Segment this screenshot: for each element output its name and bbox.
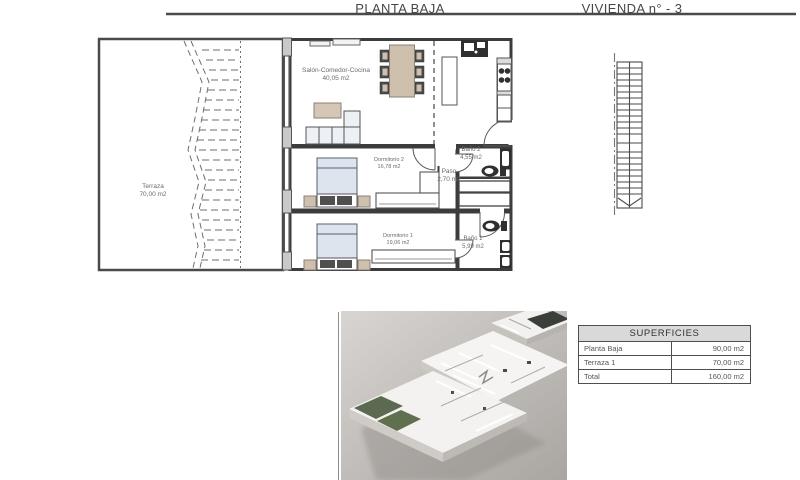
bed2: [317, 158, 357, 195]
table-row: Planta Baja 90,00 m2: [579, 342, 750, 356]
nightstand: [304, 260, 316, 270]
label-paso: Paso2,70 m2: [437, 168, 461, 184]
label-bano-1: Baño 15,99 m2: [462, 236, 484, 251]
nightstand: [304, 196, 316, 207]
bed1: [317, 224, 357, 260]
terrace-outline: [99, 39, 283, 270]
kitchen-peninsula: [442, 57, 457, 105]
nightstand: [358, 196, 370, 207]
photo-left-edge-line: [338, 312, 339, 480]
table-row: Terraza 1 70,00 m2: [579, 356, 750, 370]
staircase-section-symbol: [615, 53, 643, 218]
label-dormitorio-1: Dormitorio 119,06 m2: [383, 233, 413, 247]
floor-plan-sheet: { "header": { "plan_title": "PLANTA BAJA…: [0, 0, 800, 480]
label-bano-2: Baño 24,55 m2: [460, 147, 482, 162]
dining-table-set: [380, 45, 424, 97]
row-value: 90,00 m2: [672, 342, 750, 355]
superficies-table-title: SUPERFICIES: [579, 326, 750, 342]
hall-closets: [459, 181, 510, 206]
row-value: 70,00 m2: [672, 356, 750, 369]
label-salon-comedor-cocina: Salón-Comedor-Cocina40,05 m2: [302, 67, 370, 83]
wardrobe1: [372, 250, 455, 263]
render-3d-photo: [341, 311, 567, 480]
row-label: Planta Baja: [579, 342, 672, 355]
label-dormitorio-2: Dormitorio 216,78 m2: [374, 157, 404, 171]
superficies-table: SUPERFICIES Planta Baja 90,00 m2 Terraza…: [578, 325, 751, 384]
table-row: Total 160,00 m2: [579, 370, 750, 383]
exploded-floors-illustration: [341, 311, 567, 480]
nightstand: [358, 260, 370, 270]
kitchen-sink: [461, 40, 488, 57]
kitchen-stove: [498, 64, 512, 91]
label-terraza: Terraza70,00 m2: [139, 183, 166, 199]
row-label: Terraza 1: [579, 356, 672, 369]
row-label: Total: [579, 370, 672, 383]
row-value: 160,00 m2: [672, 370, 750, 383]
coffee-table: [314, 103, 341, 118]
